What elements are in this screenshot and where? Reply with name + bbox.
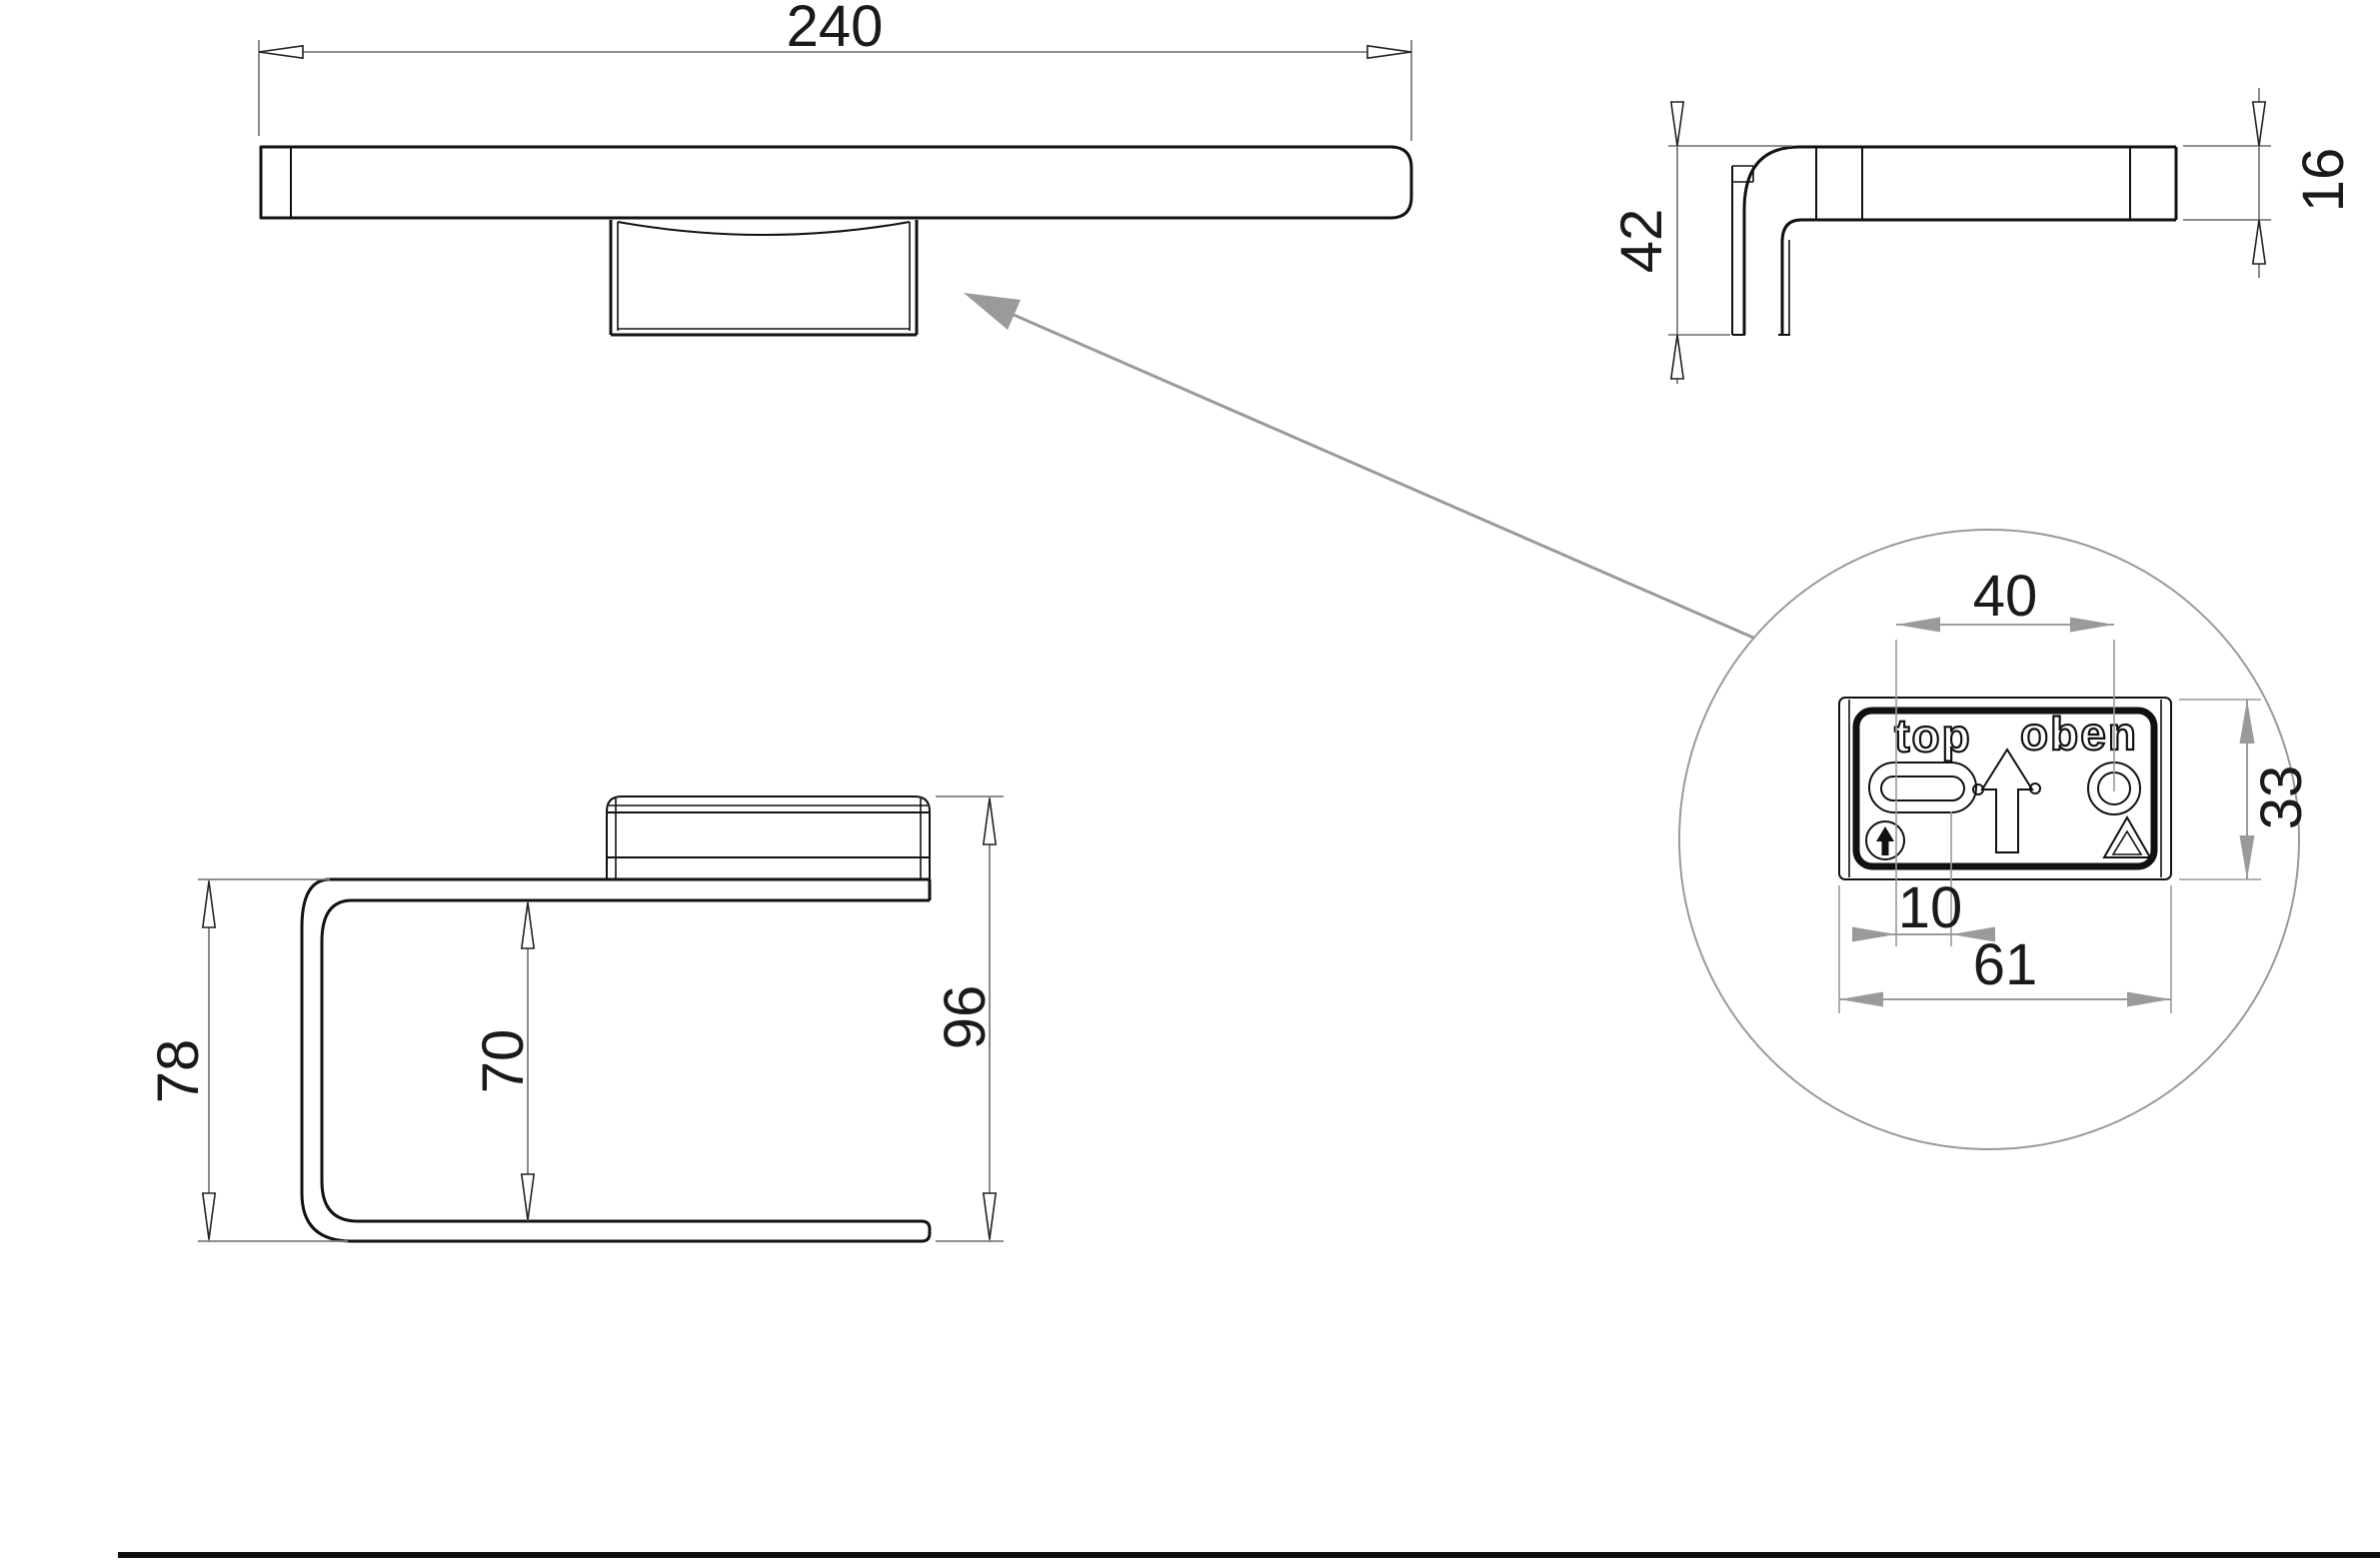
side-height-dimension: 42 [1609, 102, 1792, 384]
detail-slot-length-value: 10 [1898, 875, 1963, 940]
dim-arrow-right-icon [2070, 618, 2114, 633]
orientation-icon [1866, 821, 1904, 859]
dim-arrow-down-icon [203, 1193, 215, 1239]
dim-arrow-down-icon [2240, 835, 2255, 879]
dim-arrow-down-icon [984, 1193, 996, 1239]
detail-mounting-plate: top oben [1839, 698, 2171, 879]
front-mount-plate [607, 796, 930, 879]
footer-rule [118, 1552, 2380, 1558]
front-clearance-value: 70 [471, 1029, 536, 1094]
plan-width-value: 240 [787, 0, 884, 59]
dim-arrow-right-icon [2127, 992, 2171, 1007]
technical-drawing: 240 42 [0, 0, 2380, 1563]
detail-callout: top oben [964, 293, 2314, 1149]
dim-arrow-up-icon [522, 902, 534, 948]
plate-label-oben: oben [2020, 708, 2138, 760]
detail-hole-spacing-value: 40 [1973, 564, 2038, 629]
side-thickness-value: 16 [2291, 148, 2356, 213]
side-view: 42 16 [1609, 88, 2356, 384]
dim-arrow-left-icon [1839, 992, 1883, 1007]
front-clearance-dimension: 70 [471, 901, 536, 1221]
detail-plate-height-value: 33 [2249, 766, 2314, 830]
dim-arrow-down-icon [1671, 102, 1683, 146]
slotted-hole [1869, 763, 1976, 812]
detail-plate-width-value: 61 [1973, 932, 2038, 997]
dim-arrow-down-icon [522, 1174, 534, 1220]
plan-width-dimension: 240 [259, 0, 1411, 141]
dim-arrow-right-icon [1852, 927, 1896, 942]
side-height-value: 42 [1609, 209, 1674, 274]
dim-arrow-up-icon [2240, 700, 2255, 744]
plate-label-top: top [1894, 710, 1972, 762]
plan-view: 240 [259, 0, 1411, 335]
front-band [302, 879, 930, 1241]
side-thickness-dimension: 16 [2183, 88, 2356, 278]
front-band-height-value: 78 [146, 1039, 211, 1104]
up-arrow-icon [1982, 750, 2032, 852]
dim-arrow-up-icon [984, 798, 996, 844]
dim-arrow-right-icon [1367, 46, 1411, 58]
plan-wall-bracket [611, 220, 917, 335]
recycling-icon [2104, 817, 2150, 857]
dim-arrow-up-icon [2253, 220, 2265, 264]
side-profile [1732, 147, 2176, 335]
detail-plate-width-dimension: 61 [1839, 885, 2171, 1013]
front-band-height-dimension: 78 [146, 879, 348, 1241]
dim-arrow-up-icon [203, 881, 215, 927]
plan-bar-outline [261, 147, 1411, 218]
front-view: 78 70 96 [146, 796, 1004, 1241]
detail-leader-arrow-icon [964, 293, 1021, 330]
dim-arrow-down-icon [2253, 102, 2265, 146]
detail-plate-height-dimension: 33 [2179, 700, 2314, 879]
dim-arrow-up-icon [1671, 335, 1683, 379]
detail-leader-line [1014, 315, 1753, 638]
front-overall-height-dimension: 96 [933, 796, 1004, 1241]
dim-arrow-left-icon [1896, 618, 1940, 633]
dim-arrow-left-icon [259, 46, 303, 58]
drawing-sheet: 240 42 [0, 0, 2380, 1563]
front-overall-height-value: 96 [933, 985, 998, 1050]
